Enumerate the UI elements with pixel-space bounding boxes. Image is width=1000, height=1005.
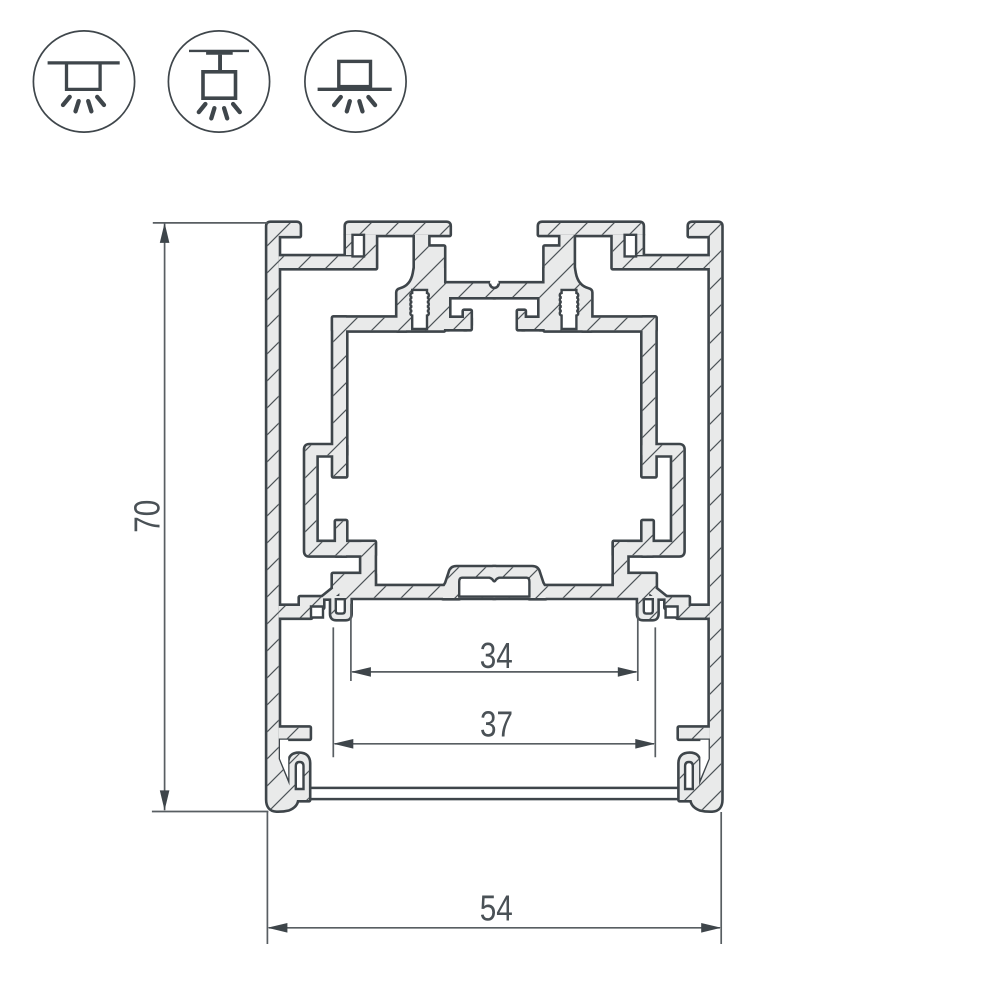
svg-text:70: 70 [126, 500, 167, 533]
svg-text:37: 37 [480, 703, 513, 744]
svg-text:54: 54 [480, 887, 513, 928]
svg-text:34: 34 [480, 635, 513, 676]
